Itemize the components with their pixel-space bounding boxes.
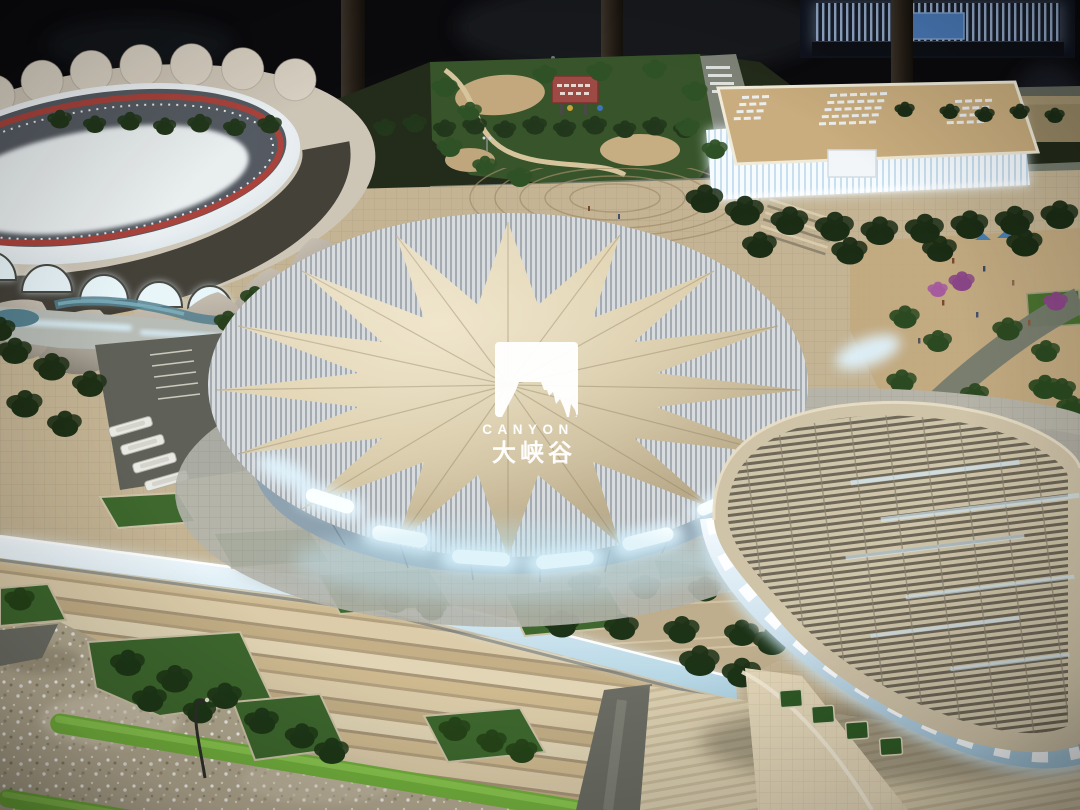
vignette-overlay [0, 0, 1080, 810]
scene-canvas: CANYON 大峡谷 [0, 0, 1080, 810]
scale-model-photo: CANYON 大峡谷 [0, 0, 1080, 810]
